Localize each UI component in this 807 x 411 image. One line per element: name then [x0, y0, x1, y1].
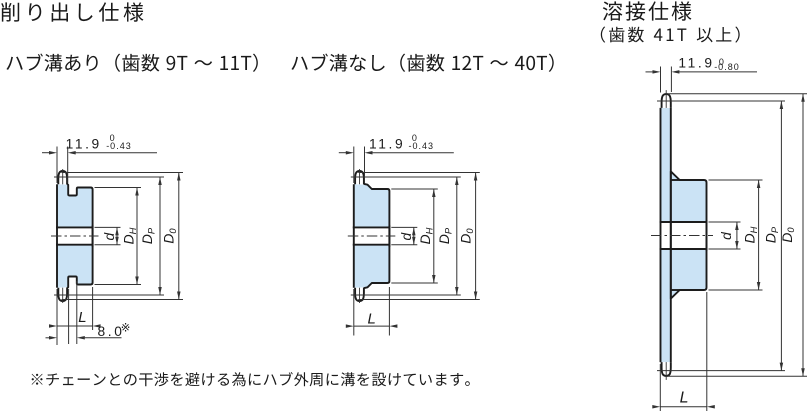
- svg-text:D0: D0: [780, 227, 796, 243]
- svg-text:D0: D0: [162, 228, 178, 244]
- svg-text:11.9: 11.9: [678, 55, 714, 70]
- svg-text:-0.43: -0.43: [409, 141, 435, 151]
- svg-text:DP: DP: [763, 226, 779, 243]
- svg-text:DH: DH: [418, 227, 434, 244]
- svg-text:d: d: [399, 231, 414, 240]
- svg-text:DP: DP: [140, 227, 156, 244]
- svg-text:d: d: [102, 231, 117, 240]
- svg-text:DH: DH: [742, 226, 758, 243]
- svg-text:※: ※: [121, 323, 131, 335]
- svg-text:d: d: [719, 231, 734, 240]
- svg-text:D0: D0: [458, 228, 474, 244]
- svg-text:L: L: [78, 309, 86, 326]
- svg-text:L: L: [368, 310, 376, 327]
- svg-text:L: L: [680, 390, 689, 407]
- svg-text:-0.43: -0.43: [106, 141, 132, 151]
- svg-text:-0.80: -0.80: [714, 62, 740, 72]
- svg-text:DP: DP: [437, 227, 453, 244]
- svg-text:DH: DH: [121, 227, 137, 244]
- svg-text:11.9: 11.9: [66, 137, 102, 152]
- svg-text:11.9: 11.9: [369, 137, 405, 152]
